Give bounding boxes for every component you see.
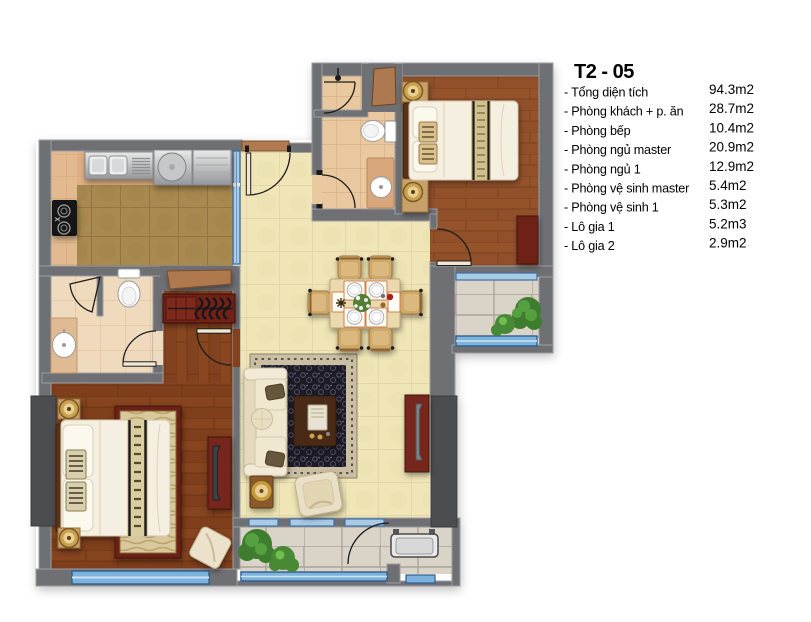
svg-text:- Phòng vệ sinh 1: - Phòng vệ sinh 1 bbox=[564, 201, 659, 215]
svg-text:5.2m3: 5.2m3 bbox=[709, 216, 747, 231]
svg-text:28.7m2: 28.7m2 bbox=[709, 101, 754, 116]
svg-text:5.4m2: 5.4m2 bbox=[709, 178, 747, 193]
svg-text:2.9m2: 2.9m2 bbox=[709, 236, 747, 251]
svg-text:- Phòng vệ sinh master: - Phòng vệ sinh master bbox=[564, 182, 689, 196]
svg-text:- Phòng khách + p. ăn: - Phòng khách + p. ăn bbox=[564, 105, 684, 119]
svg-text:- Tổng diện tích: - Tổng diện tích bbox=[564, 86, 648, 100]
svg-text:94.3m2: 94.3m2 bbox=[709, 82, 754, 97]
svg-text:- Phòng ngủ 1: - Phòng ngủ 1 bbox=[564, 162, 641, 176]
svg-text:10.4m2: 10.4m2 bbox=[709, 120, 754, 135]
svg-text:5.3m2: 5.3m2 bbox=[709, 197, 747, 212]
svg-text:12.9m2: 12.9m2 bbox=[709, 159, 754, 174]
svg-text:- Phòng bếp: - Phòng bếp bbox=[564, 124, 631, 138]
svg-text:- Phòng ngủ master: - Phòng ngủ master bbox=[564, 143, 671, 157]
svg-text:T2 - 05: T2 - 05 bbox=[574, 61, 634, 83]
svg-text:- Lô gia 1: - Lô gia 1 bbox=[564, 220, 615, 234]
svg-text:- Lô gia 2: - Lô gia 2 bbox=[564, 239, 615, 253]
svg-text:20.9m2: 20.9m2 bbox=[709, 140, 754, 155]
